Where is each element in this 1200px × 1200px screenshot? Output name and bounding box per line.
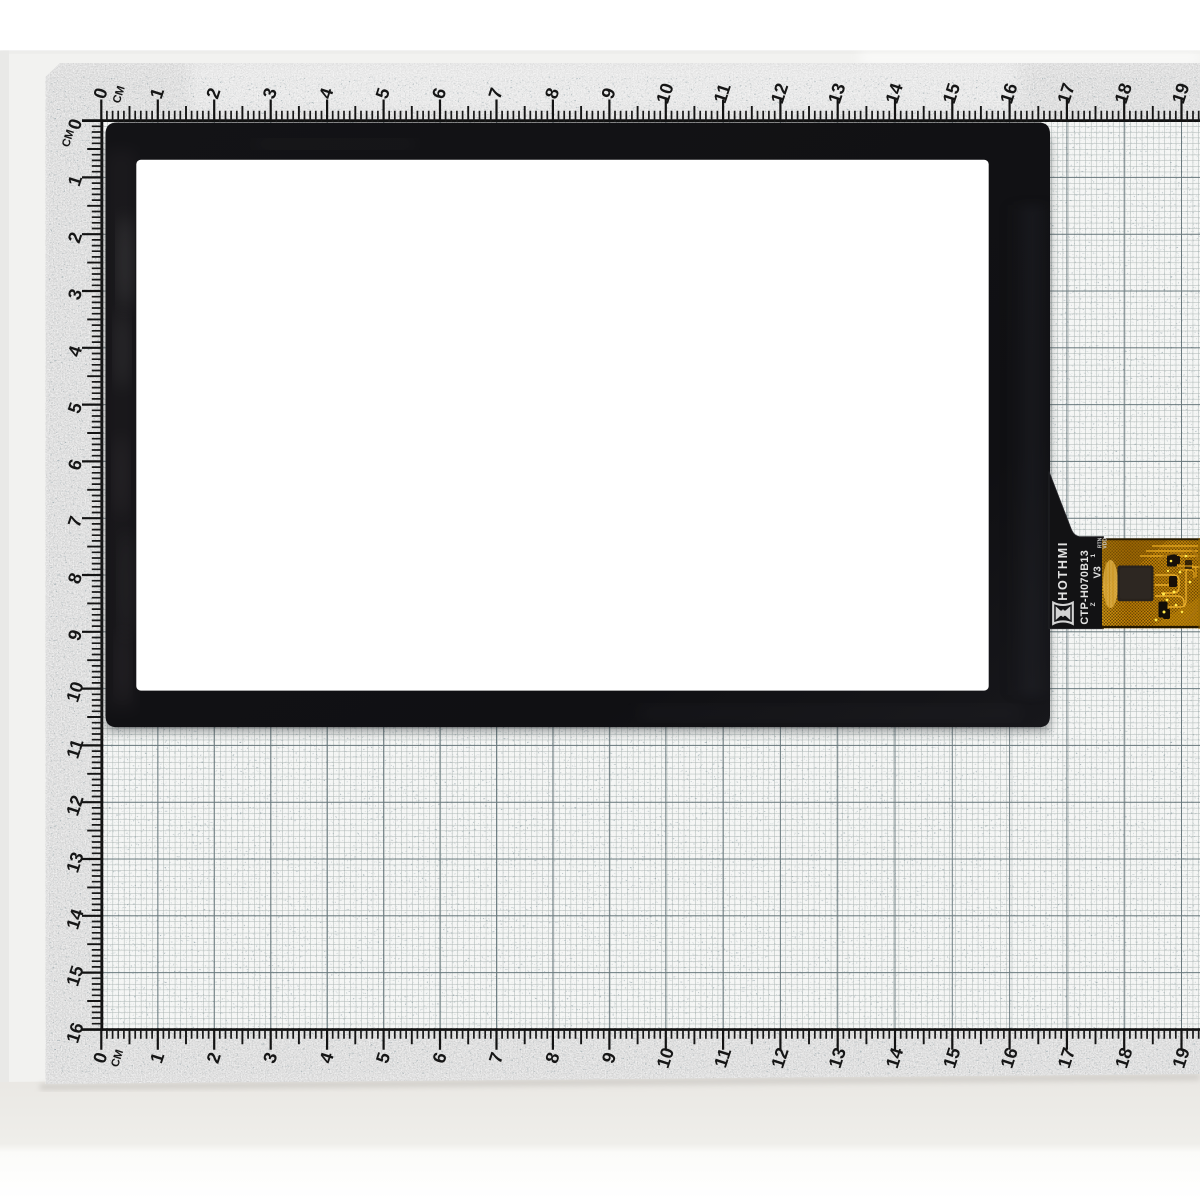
svg-text:CTP-H070B13: CTP-H070B13 [1079,550,1091,625]
svg-text:1: 1 [1090,554,1097,558]
svg-text:HOTHMI: HOTHMI [1056,541,1070,601]
svg-text:V3: V3 [1092,566,1103,579]
svg-text:Z: Z [1090,602,1097,606]
svg-text:VDD: VDD [1102,538,1108,549]
